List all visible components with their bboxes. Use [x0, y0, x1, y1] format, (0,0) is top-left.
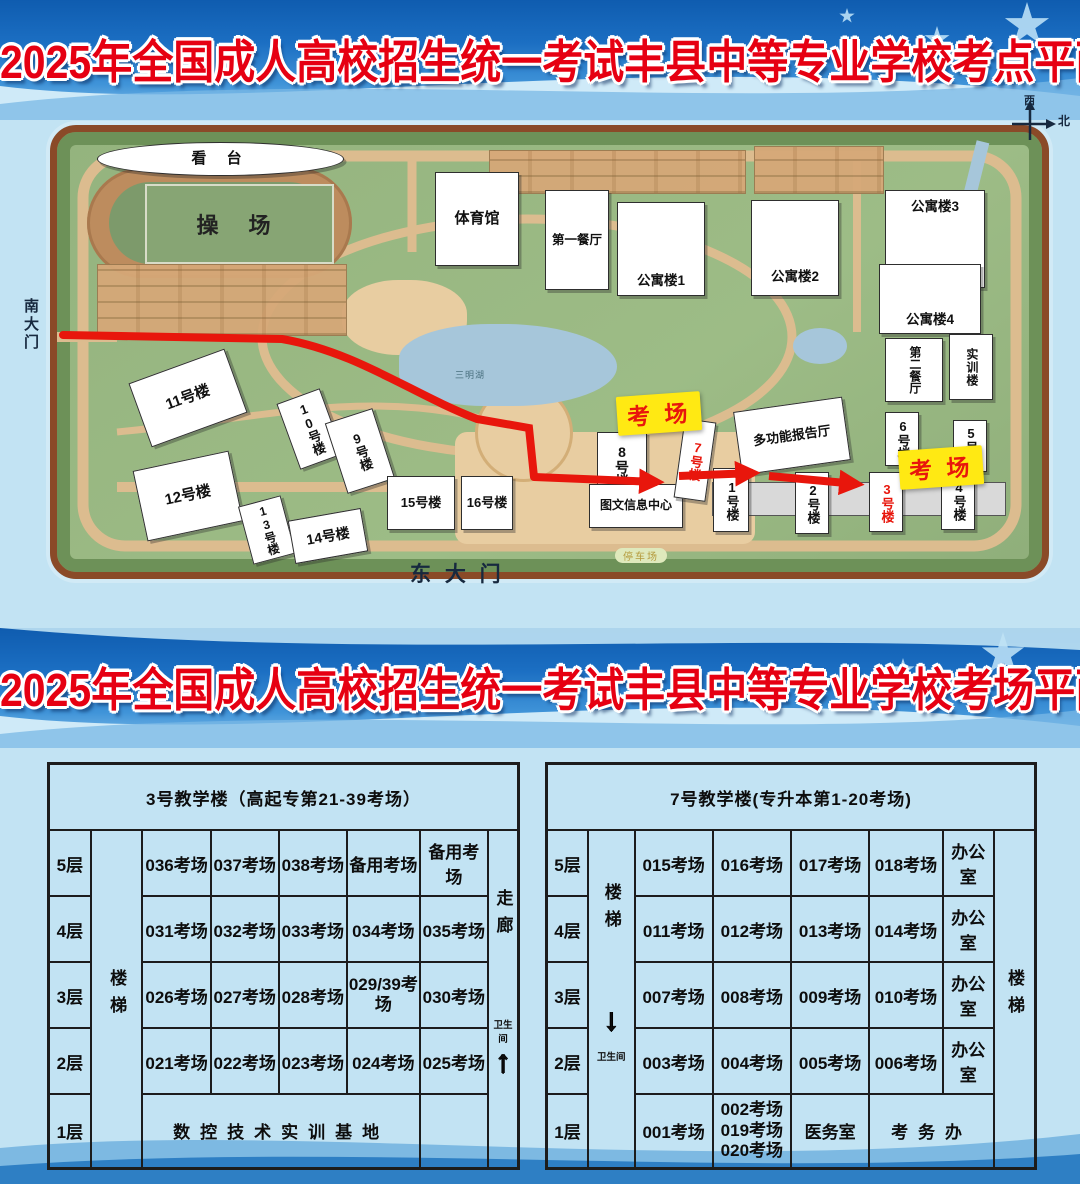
office-cell: 办公室 [943, 830, 994, 896]
building-apartment-1: 公寓楼1 [617, 202, 705, 296]
lake [399, 324, 617, 406]
medical-room-cell: 医务室 [791, 1094, 869, 1168]
right-table-title: 7号教学楼(专升本第1-20考场) [547, 764, 1036, 831]
building-gym: 体育馆 [435, 172, 519, 266]
up-arrow-icon: ↑ [495, 1045, 511, 1077]
room-line: 020考场 [714, 1141, 790, 1161]
floor-label: 1层 [49, 1094, 91, 1168]
room-cell: 036考场 [142, 830, 210, 896]
basketball-courts [489, 150, 746, 194]
floor-label: 3层 [547, 962, 589, 1028]
pond [793, 328, 847, 364]
no3-label: 3号楼 [879, 482, 894, 523]
room-cell: 015考场 [635, 830, 713, 896]
south-gate-label: 南大门 [20, 298, 41, 352]
basketball-courts [97, 264, 347, 336]
office-cell: 办公室 [943, 896, 994, 962]
room-cell: 038考场 [279, 830, 347, 896]
exam-room-badge-1: 考 场 [616, 391, 703, 436]
building-no-1: 1号楼 [713, 468, 749, 532]
room-cell: 004考场 [713, 1028, 791, 1094]
room-line: 019考场 [714, 1121, 790, 1141]
room-cell: 010考场 [869, 962, 942, 1028]
left-table-title: 3号教学楼（高起专第21-39考场） [49, 764, 519, 831]
room-cell: 006考场 [869, 1028, 942, 1094]
lake-label: 三明湖 [455, 368, 485, 381]
room-cell: 013考场 [791, 896, 869, 962]
room-cell: 033考场 [279, 896, 347, 962]
building-dining-1: 第一餐厅 [545, 190, 609, 290]
room-cell: 021考场 [142, 1028, 210, 1094]
down-arrow-icon: ↓ [603, 1003, 619, 1035]
east-gate-label: 东 大 门 [410, 558, 505, 588]
building-training: 实训楼 [949, 334, 993, 400]
office-cell: 办公室 [943, 1028, 994, 1094]
library-label: 图文信息中心 [600, 499, 672, 513]
campus-map: 三明湖 停车场 看 台 操 场 体育馆 第一餐厅 公寓楼1 公寓楼2 公寓楼3 … [50, 125, 1049, 579]
room-cell: 备用考场 [347, 830, 420, 896]
room-cell: 003考场 [635, 1028, 713, 1094]
apt4-label: 公寓楼4 [906, 312, 954, 328]
basketball-courts [754, 146, 884, 194]
room-cell: 001考场 [635, 1094, 713, 1168]
floor1-facility-cell: 数控技术实训基地 [142, 1094, 419, 1168]
middle-banner: 2025年全国成人高校招生统一考试丰县中等专业学校考场平面图 [0, 628, 1080, 748]
room-cell-multi: 002考场 019考场 020考场 [713, 1094, 791, 1168]
room-cell: 011考场 [635, 896, 713, 962]
compass-north-label: 北 [1058, 112, 1070, 129]
no12-label: 12号楼 [163, 483, 212, 510]
playground: 操 场 [145, 184, 334, 264]
building-apartment-2: 公寓楼2 [751, 200, 839, 296]
room-cell: 022考场 [211, 1028, 279, 1094]
floor-label: 2层 [547, 1028, 589, 1094]
training-label: 实训楼 [964, 348, 978, 387]
room-cell: 014考场 [869, 896, 942, 962]
room-cell: 029/39考场 [347, 962, 420, 1028]
floor-label: 4层 [49, 896, 91, 962]
room-cell: 017考场 [791, 830, 869, 896]
room-cell: 005考场 [791, 1028, 869, 1094]
room-cell: 018考场 [869, 830, 942, 896]
room-cell: 028考场 [279, 962, 347, 1028]
building-no-16: 16号楼 [461, 476, 513, 530]
apt1-label: 公寓楼1 [637, 273, 685, 289]
corridor-column: 走廊 卫生间 ↑ [488, 830, 519, 1168]
room-cell: 备用考场 [420, 830, 488, 896]
stairs-column: 楼梯 [91, 830, 143, 1168]
no10-label: 10号楼 [293, 400, 326, 458]
dining2-label: 第二餐厅 [907, 346, 921, 394]
stairs-column-left: 楼梯 ↓ 卫生间 [588, 830, 634, 1168]
apt2-label: 公寓楼2 [771, 269, 819, 285]
no2-label: 2号楼 [805, 483, 820, 524]
building-no-15: 15号楼 [387, 476, 455, 530]
building-no-2: 2号楼 [795, 472, 829, 534]
room-cell: 024考场 [347, 1028, 420, 1094]
room-cell: 037考场 [211, 830, 279, 896]
building-7-room-table: 7号教学楼(专升本第1-20考场) 5层 楼梯 ↓ 卫生间 015考场 016考… [545, 762, 1037, 1170]
stairs-label: 楼梯 [104, 969, 129, 1023]
no9-label: 9号楼 [347, 429, 374, 473]
no8-label: 8号楼 [614, 444, 630, 488]
stairs-column-right: 楼梯 [994, 830, 1036, 1168]
no7-label: 7号楼 [685, 439, 705, 482]
floor-label: 3层 [49, 962, 91, 1028]
room-cell: 030考场 [420, 962, 488, 1028]
room-cell: 026考场 [142, 962, 210, 1028]
room-cell: 009考场 [791, 962, 869, 1028]
playground-label: 操 场 [196, 208, 282, 240]
building-no-3: 3号楼 [869, 472, 903, 532]
floor-label: 5层 [547, 830, 589, 896]
room-cell: 031考场 [142, 896, 210, 962]
room-cell: 032考场 [211, 896, 279, 962]
no1-label: 1号楼 [724, 480, 739, 521]
room-cell: 016考场 [713, 830, 791, 896]
grandstand: 看 台 [97, 142, 344, 176]
compass-west-label: 西 [1024, 92, 1035, 108]
no13-label: 13号楼 [254, 503, 281, 557]
parking-label: 停车场 [615, 548, 667, 563]
stairs-label: 楼梯 [1002, 969, 1027, 1023]
apt3-label: 公寓楼3 [911, 199, 959, 215]
gym-label: 体育馆 [454, 210, 499, 227]
report-hall-label: 多功能报告厅 [752, 423, 831, 449]
poster: 2025年全国成人高校招生统一考试丰县中等专业学校考点平面图 三明湖 停车场 看… [0, 0, 1080, 1184]
room-line: 002考场 [714, 1100, 790, 1120]
exam-office-cell: 考务办 [869, 1094, 994, 1168]
building-apartment-4: 公寓楼4 [879, 264, 981, 334]
floor-label: 4层 [547, 896, 589, 962]
compass: 西 北 [1000, 94, 1076, 146]
empty-cell [420, 1094, 488, 1168]
no11-label: 11号楼 [163, 382, 212, 414]
room-cell: 007考场 [635, 962, 713, 1028]
building-3-room-table: 3号教学楼（高起专第21-39考场） 5层 楼梯 036考场 037考场 038… [47, 762, 520, 1170]
room-cell: 034考场 [347, 896, 420, 962]
room-cell: 023考场 [279, 1028, 347, 1094]
office-cell: 办公室 [943, 962, 994, 1028]
floor-label: 5层 [49, 830, 91, 896]
dining1-label: 第一餐厅 [552, 233, 602, 247]
floor-label: 2层 [49, 1028, 91, 1094]
top-banner: 2025年全国成人高校招生统一考试丰县中等专业学校考点平面图 [0, 0, 1080, 120]
toilet-label: 卫生间 [489, 1017, 517, 1045]
no16-label: 16号楼 [467, 496, 507, 511]
exam-room-badge-2: 考 场 [898, 445, 985, 490]
floor-label: 1层 [547, 1094, 589, 1168]
corridor-label: 走廊 [490, 889, 515, 943]
site-plan-title: 2025年全国成人高校招生统一考试丰县中等专业学校考点平面图 [0, 24, 1080, 91]
building-library-info: 图文信息中心 [589, 484, 683, 528]
toilet-label: 卫生间 [597, 1049, 626, 1063]
stairs-label: 楼梯 [599, 883, 624, 937]
grandstand-label: 看 台 [191, 150, 249, 167]
no15-label: 15号楼 [401, 496, 441, 511]
room-cell: 035考场 [420, 896, 488, 962]
building-dining-2: 第二餐厅 [885, 338, 943, 402]
room-cell: 008考场 [713, 962, 791, 1028]
room-cell: 012考场 [713, 896, 791, 962]
no14-label: 14号楼 [305, 524, 351, 547]
room-cell: 025考场 [420, 1028, 488, 1094]
room-plan-title: 2025年全国成人高校招生统一考试丰县中等专业学校考场平面图 [0, 652, 1080, 719]
room-cell: 027考场 [211, 962, 279, 1028]
